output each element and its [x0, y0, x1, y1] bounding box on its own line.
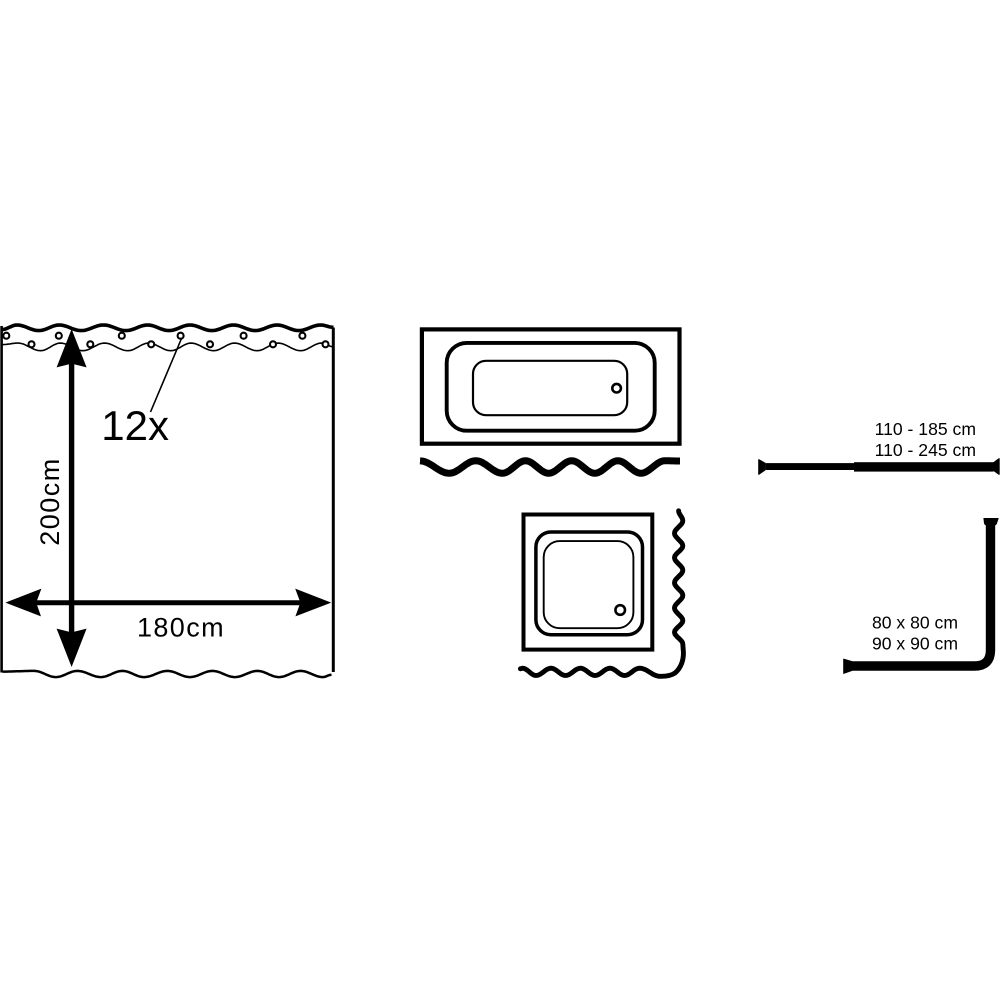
svg-text:110 - 185 cm: 110 - 185 cm [875, 419, 976, 439]
svg-text:80 x 80 cm: 80 x 80 cm [872, 613, 958, 633]
svg-text:180cm: 180cm [137, 612, 225, 642]
svg-text:12x: 12x [101, 402, 169, 449]
svg-text:110 - 245 cm: 110 - 245 cm [875, 440, 976, 460]
svg-text:90 x 90 cm: 90 x 90 cm [872, 634, 958, 654]
svg-text:200cm: 200cm [35, 457, 65, 546]
